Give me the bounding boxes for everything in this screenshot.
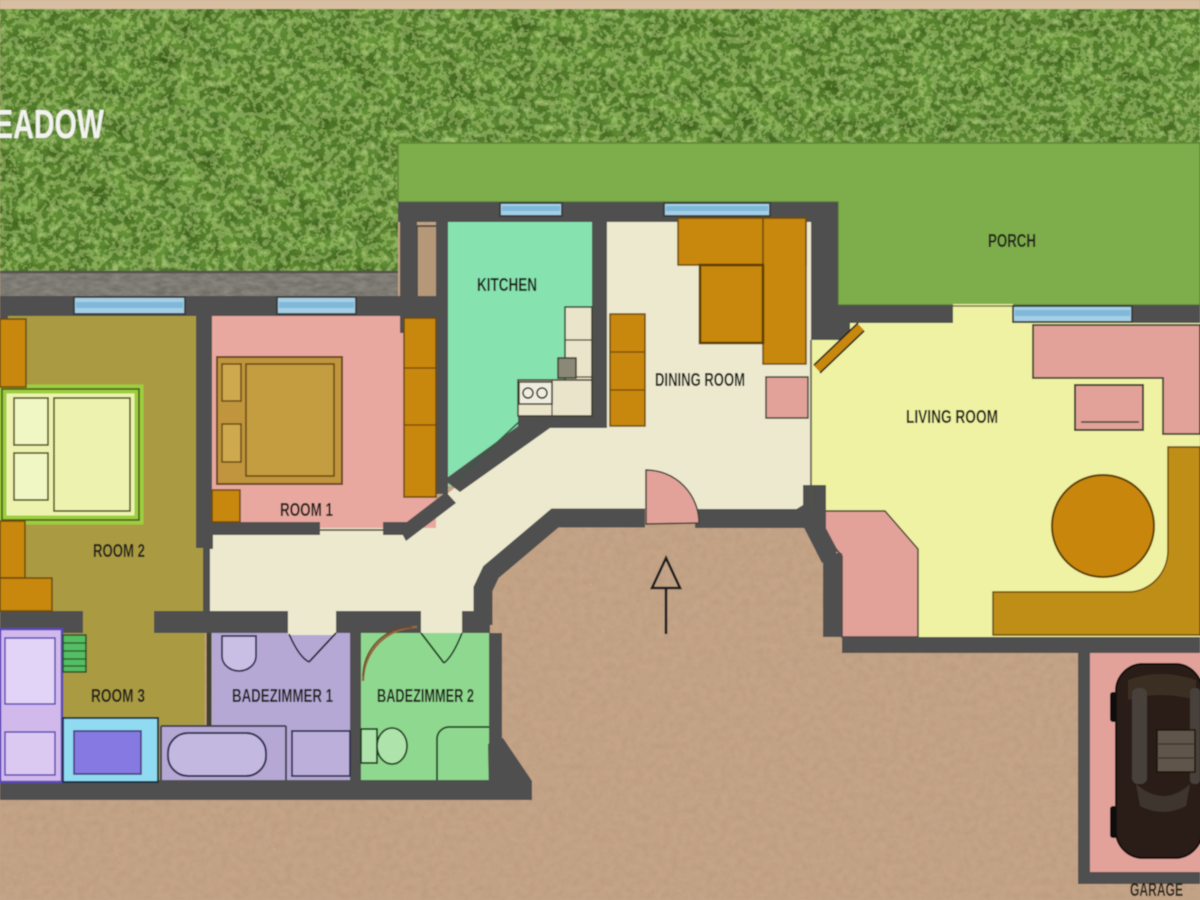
svg-text:BADEZIMMER 2: BADEZIMMER 2	[377, 686, 474, 706]
svg-text:DINING ROOM: DINING ROOM	[655, 370, 745, 390]
svg-text:ROOM 3: ROOM 3	[91, 686, 145, 706]
svg-text:PORCH: PORCH	[988, 231, 1036, 251]
svg-text:ROOM 1: ROOM 1	[280, 500, 333, 520]
svg-text:KITCHEN: KITCHEN	[477, 275, 537, 295]
svg-text:BADEZIMMER 1: BADEZIMMER 1	[232, 686, 333, 706]
svg-text:LIVING ROOM: LIVING ROOM	[906, 407, 998, 427]
svg-text:MEADOW: MEADOW	[0, 101, 104, 147]
svg-text:ROOM 2: ROOM 2	[93, 541, 145, 561]
svg-text:GARAGE: GARAGE	[1130, 880, 1183, 900]
